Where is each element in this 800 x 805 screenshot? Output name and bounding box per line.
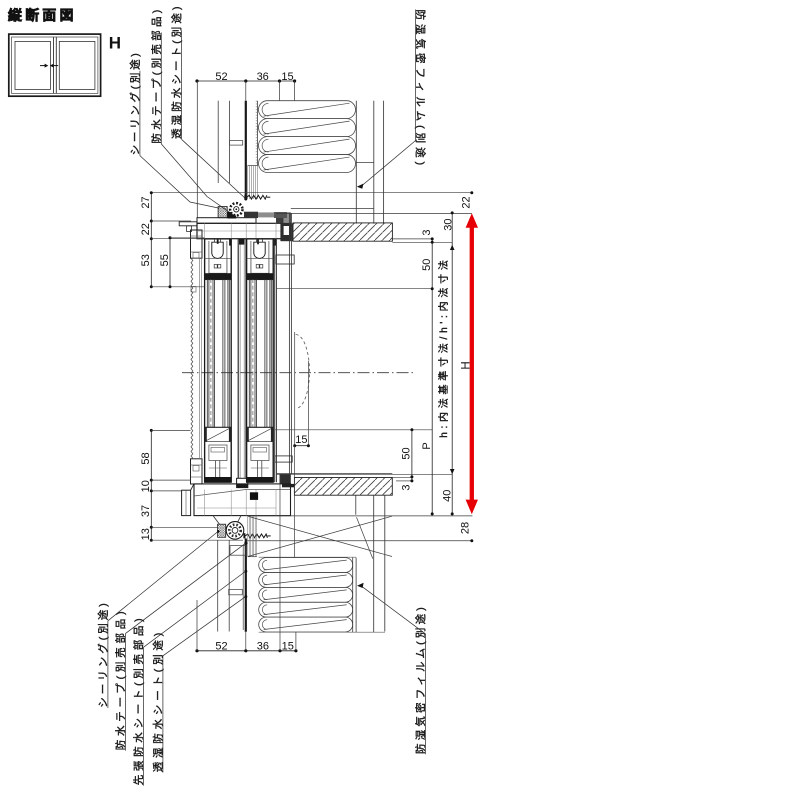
svg-text:22: 22 <box>140 223 152 235</box>
svg-text:55: 55 <box>159 254 171 266</box>
svg-text:22: 22 <box>460 196 472 208</box>
svg-text:50: 50 <box>421 259 433 271</box>
svg-text:36: 36 <box>257 641 269 653</box>
svg-text:透湿防水シート(別途): 透湿防水シート(別途) <box>170 3 183 139</box>
svg-text:58: 58 <box>140 452 152 464</box>
svg-text:防水テープ(別売部品): 防水テープ(別売部品) <box>150 6 163 143</box>
svg-text:52: 52 <box>215 71 227 83</box>
svg-text:50: 50 <box>401 447 413 459</box>
svg-text:37: 37 <box>140 505 152 517</box>
svg-text:防湿気密フィルム(別途): 防湿気密フィルム(別途) <box>414 10 427 170</box>
svg-text:H: H <box>109 34 121 53</box>
svg-text:H: H <box>461 361 473 369</box>
svg-text:防水テープ(別売部品): 防水テープ(別売部品) <box>114 608 127 751</box>
svg-text:15: 15 <box>295 434 307 446</box>
svg-text:先張防水シート(別売部品): 先張防水シート(別売部品) <box>132 615 145 786</box>
svg-text:透湿防水シート(別途): 透湿防水シート(別途) <box>151 629 164 772</box>
svg-text:P: P <box>421 442 433 449</box>
svg-text:40: 40 <box>441 490 453 502</box>
svg-text:15: 15 <box>282 641 294 653</box>
svg-text:28: 28 <box>460 522 472 534</box>
svg-text:15: 15 <box>281 71 293 83</box>
svg-text:3: 3 <box>421 229 433 235</box>
svg-text:27: 27 <box>140 196 152 208</box>
svg-text:縦断面図: 縦断面図 <box>8 7 77 23</box>
svg-text:52: 52 <box>215 641 227 653</box>
svg-text:30: 30 <box>443 218 455 230</box>
svg-text:シーリング(別途): シーリング(別途) <box>96 600 109 708</box>
svg-text:10: 10 <box>140 480 152 492</box>
svg-text:h:内法基準寸法/h':内法寸法: h:内法基準寸法/h':内法寸法 <box>437 256 450 437</box>
svg-text:シーリング(別途): シーリング(別途) <box>128 51 141 156</box>
svg-text:36: 36 <box>257 71 269 83</box>
svg-text:53: 53 <box>140 254 152 266</box>
svg-text:13: 13 <box>140 528 152 540</box>
svg-text:3: 3 <box>401 484 413 490</box>
